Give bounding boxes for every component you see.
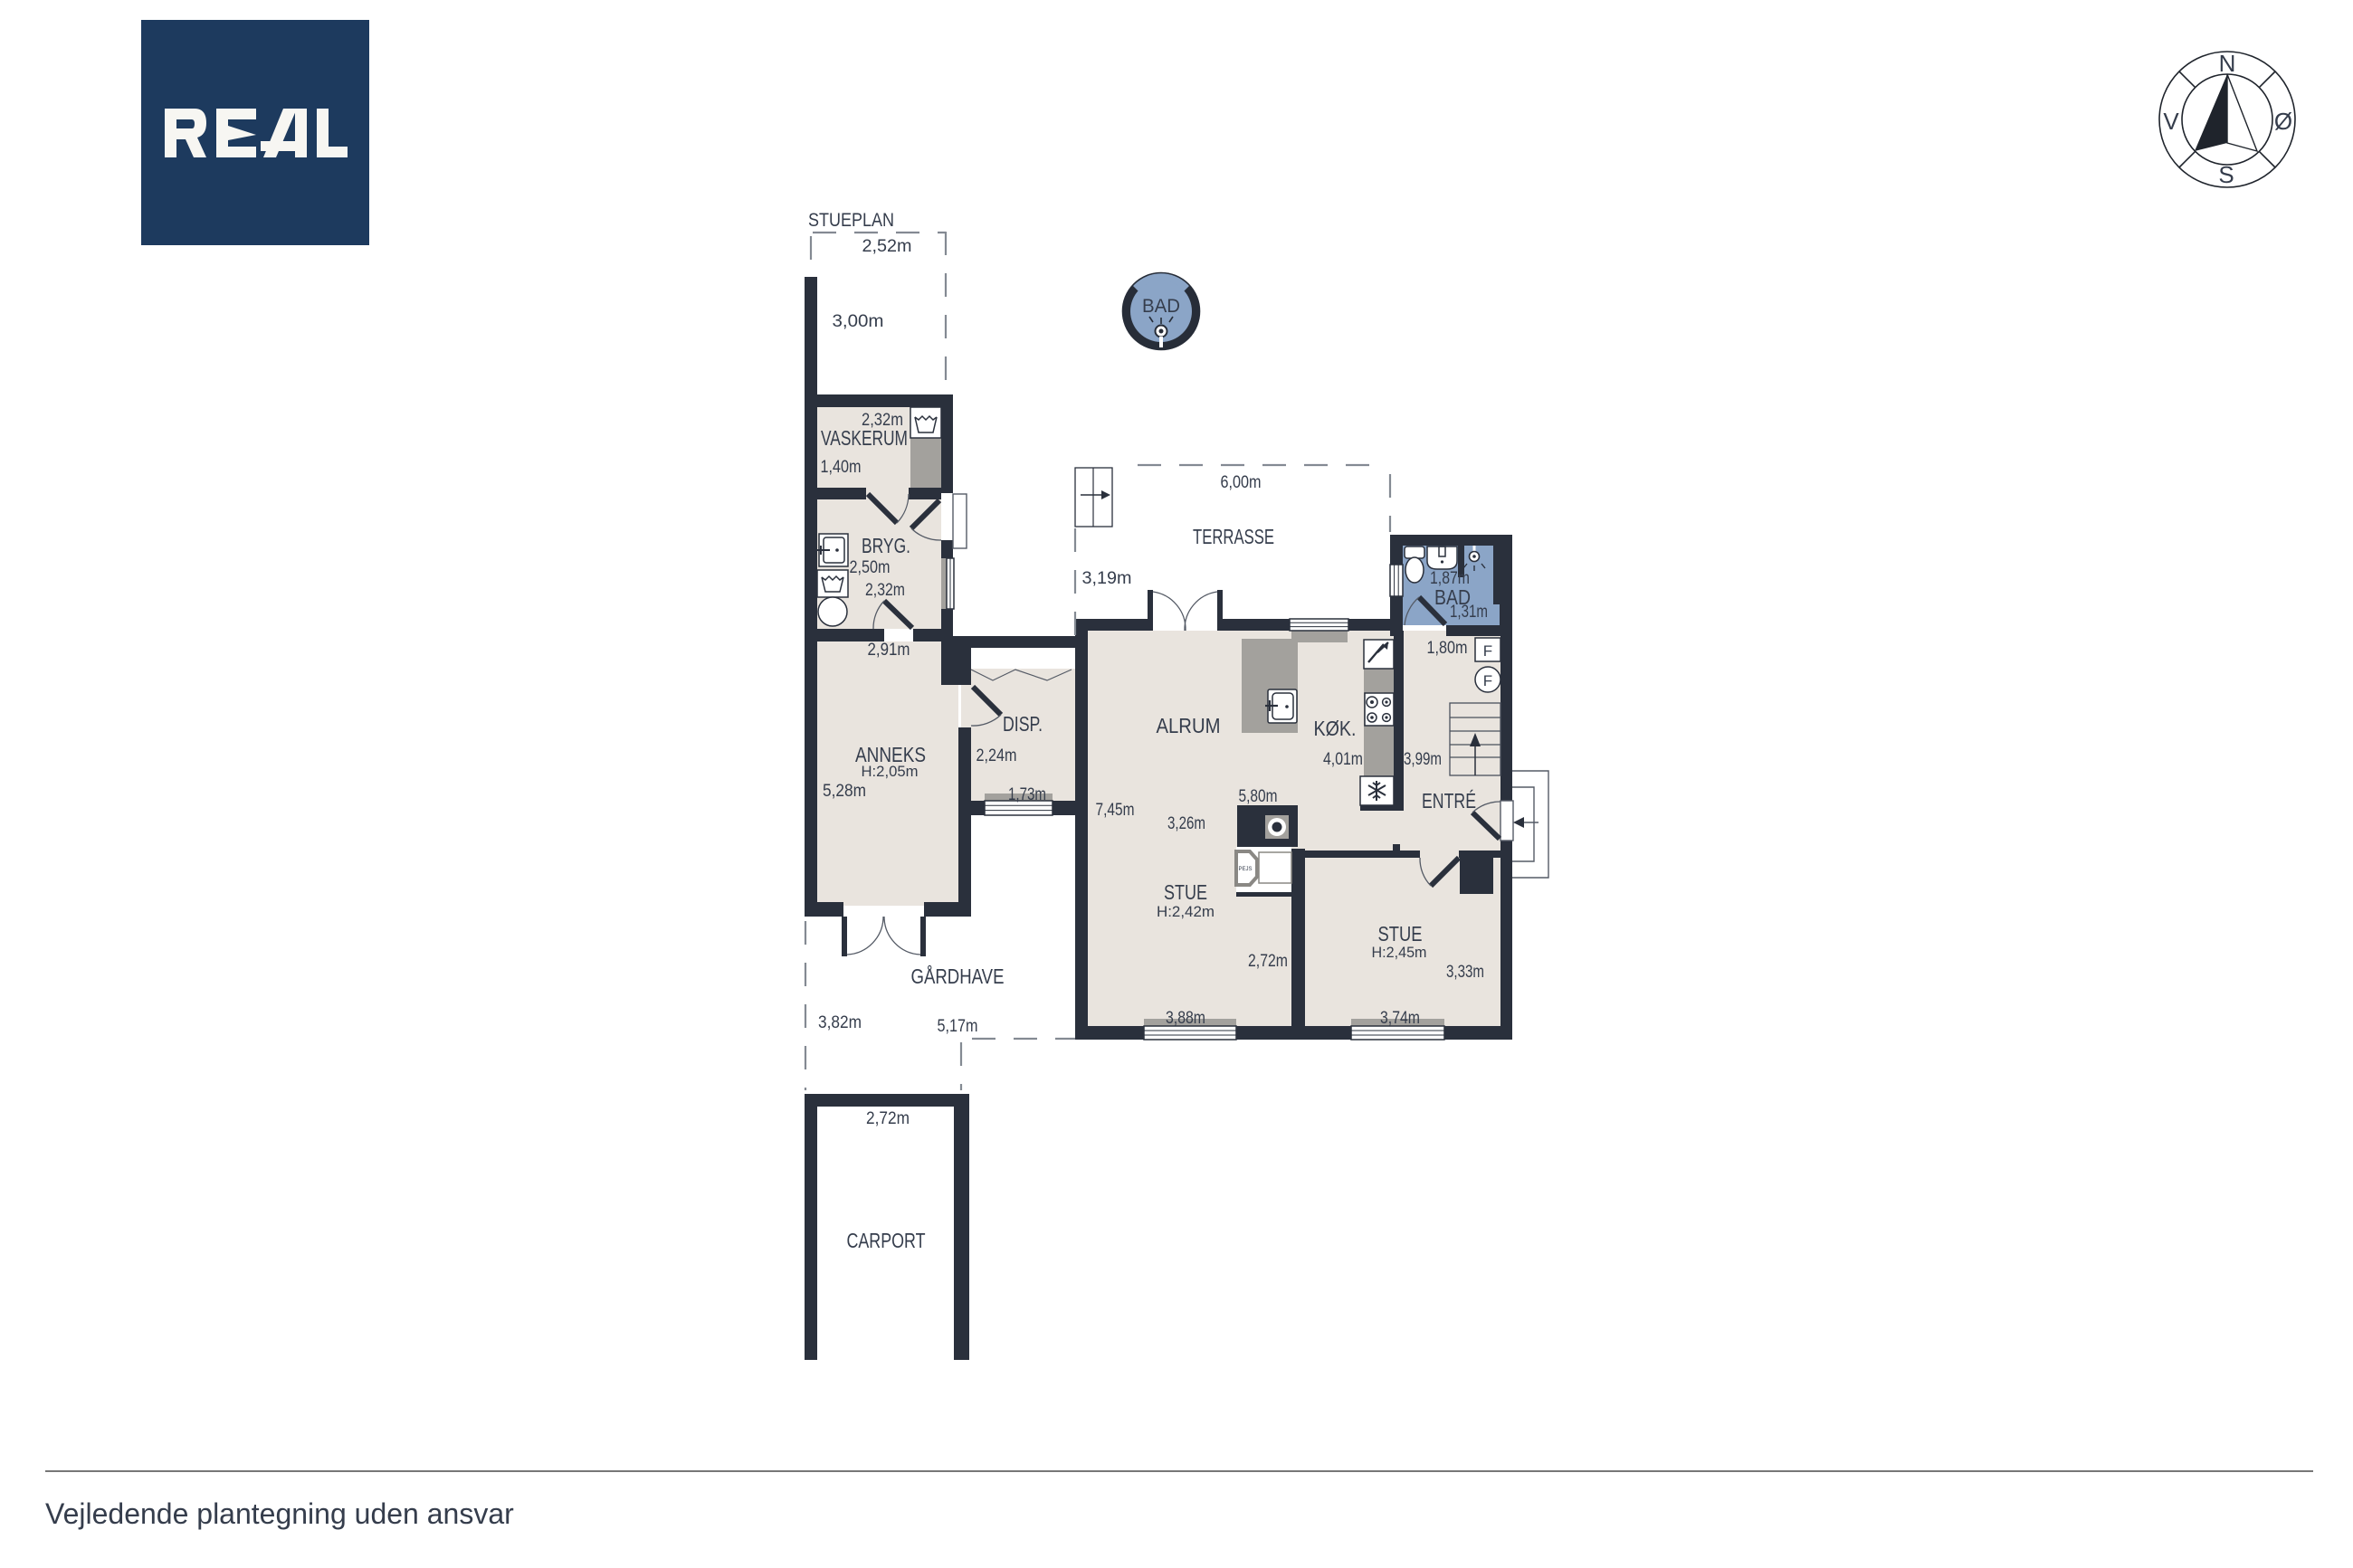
svg-text:3,26m: 3,26m (1167, 814, 1205, 833)
svg-text:3,88m: 3,88m (1166, 1009, 1205, 1028)
svg-text:4,01m: 4,01m (1323, 750, 1363, 769)
svg-text:BAD: BAD (1142, 296, 1180, 317)
svg-text:6,00m: 6,00m (1221, 473, 1262, 492)
svg-text:CARPORT: CARPORT (847, 1229, 926, 1252)
svg-text:1,40m: 1,40m (821, 458, 862, 477)
svg-text:5,80m: 5,80m (1239, 787, 1278, 806)
svg-text:5,17m: 5,17m (938, 1017, 978, 1036)
svg-text:2,24m: 2,24m (976, 746, 1017, 765)
svg-text:PEJS: PEJS (1238, 867, 1252, 872)
svg-text:V: V (2163, 108, 2179, 135)
svg-text:S: S (2218, 161, 2234, 188)
svg-text:3,99m: 3,99m (1404, 750, 1442, 769)
svg-text:VASKERUM: VASKERUM (821, 426, 908, 450)
svg-text:2,72m: 2,72m (1248, 952, 1288, 971)
svg-text:F: F (1483, 642, 1492, 660)
svg-text:1,73m: 1,73m (1008, 785, 1046, 804)
svg-text:ALRUM: ALRUM (1157, 714, 1221, 737)
svg-text:ENTRÉ: ENTRÉ (1422, 789, 1476, 813)
svg-text:Ø: Ø (2274, 108, 2292, 135)
svg-text:2,32m: 2,32m (865, 581, 905, 600)
svg-text:2,52m: 2,52m (862, 237, 912, 256)
svg-text:GÅRDHAVE: GÅRDHAVE (911, 964, 1005, 988)
svg-text:BRYG.: BRYG. (862, 534, 910, 557)
svg-text:H:2,05m: H:2,05m (862, 763, 919, 780)
svg-text:3,33m: 3,33m (1446, 963, 1484, 982)
svg-text:N: N (2219, 50, 2236, 77)
svg-text:3,82m: 3,82m (818, 1013, 862, 1032)
svg-text:STUE: STUE (1378, 922, 1423, 946)
svg-text:3,00m: 3,00m (833, 312, 884, 331)
svg-text:3,74m: 3,74m (1380, 1009, 1420, 1028)
svg-text:H:2,42m: H:2,42m (1157, 903, 1215, 920)
svg-text:5,28m: 5,28m (823, 782, 866, 801)
svg-text:TERRASSE: TERRASSE (1193, 525, 1274, 548)
svg-text:2,72m: 2,72m (866, 1109, 910, 1128)
svg-text:2,50m: 2,50m (850, 558, 891, 577)
svg-text:KØK.: KØK. (1314, 717, 1357, 740)
svg-text:Vejledende plantegning uden an: Vejledende plantegning uden ansvar (45, 1497, 514, 1530)
svg-text:STUE: STUE (1164, 880, 1207, 904)
svg-text:F: F (1483, 672, 1492, 689)
svg-text:1,80m: 1,80m (1427, 639, 1468, 658)
svg-text:H:2,45m: H:2,45m (1372, 944, 1427, 961)
svg-text:1,31m: 1,31m (1450, 603, 1488, 622)
svg-text:2,91m: 2,91m (868, 641, 910, 660)
svg-text:3,19m: 3,19m (1082, 569, 1132, 588)
svg-text:STUEPLAN: STUEPLAN (808, 210, 894, 231)
svg-text:DISP.: DISP. (1003, 712, 1043, 736)
svg-text:7,45m: 7,45m (1096, 801, 1135, 820)
